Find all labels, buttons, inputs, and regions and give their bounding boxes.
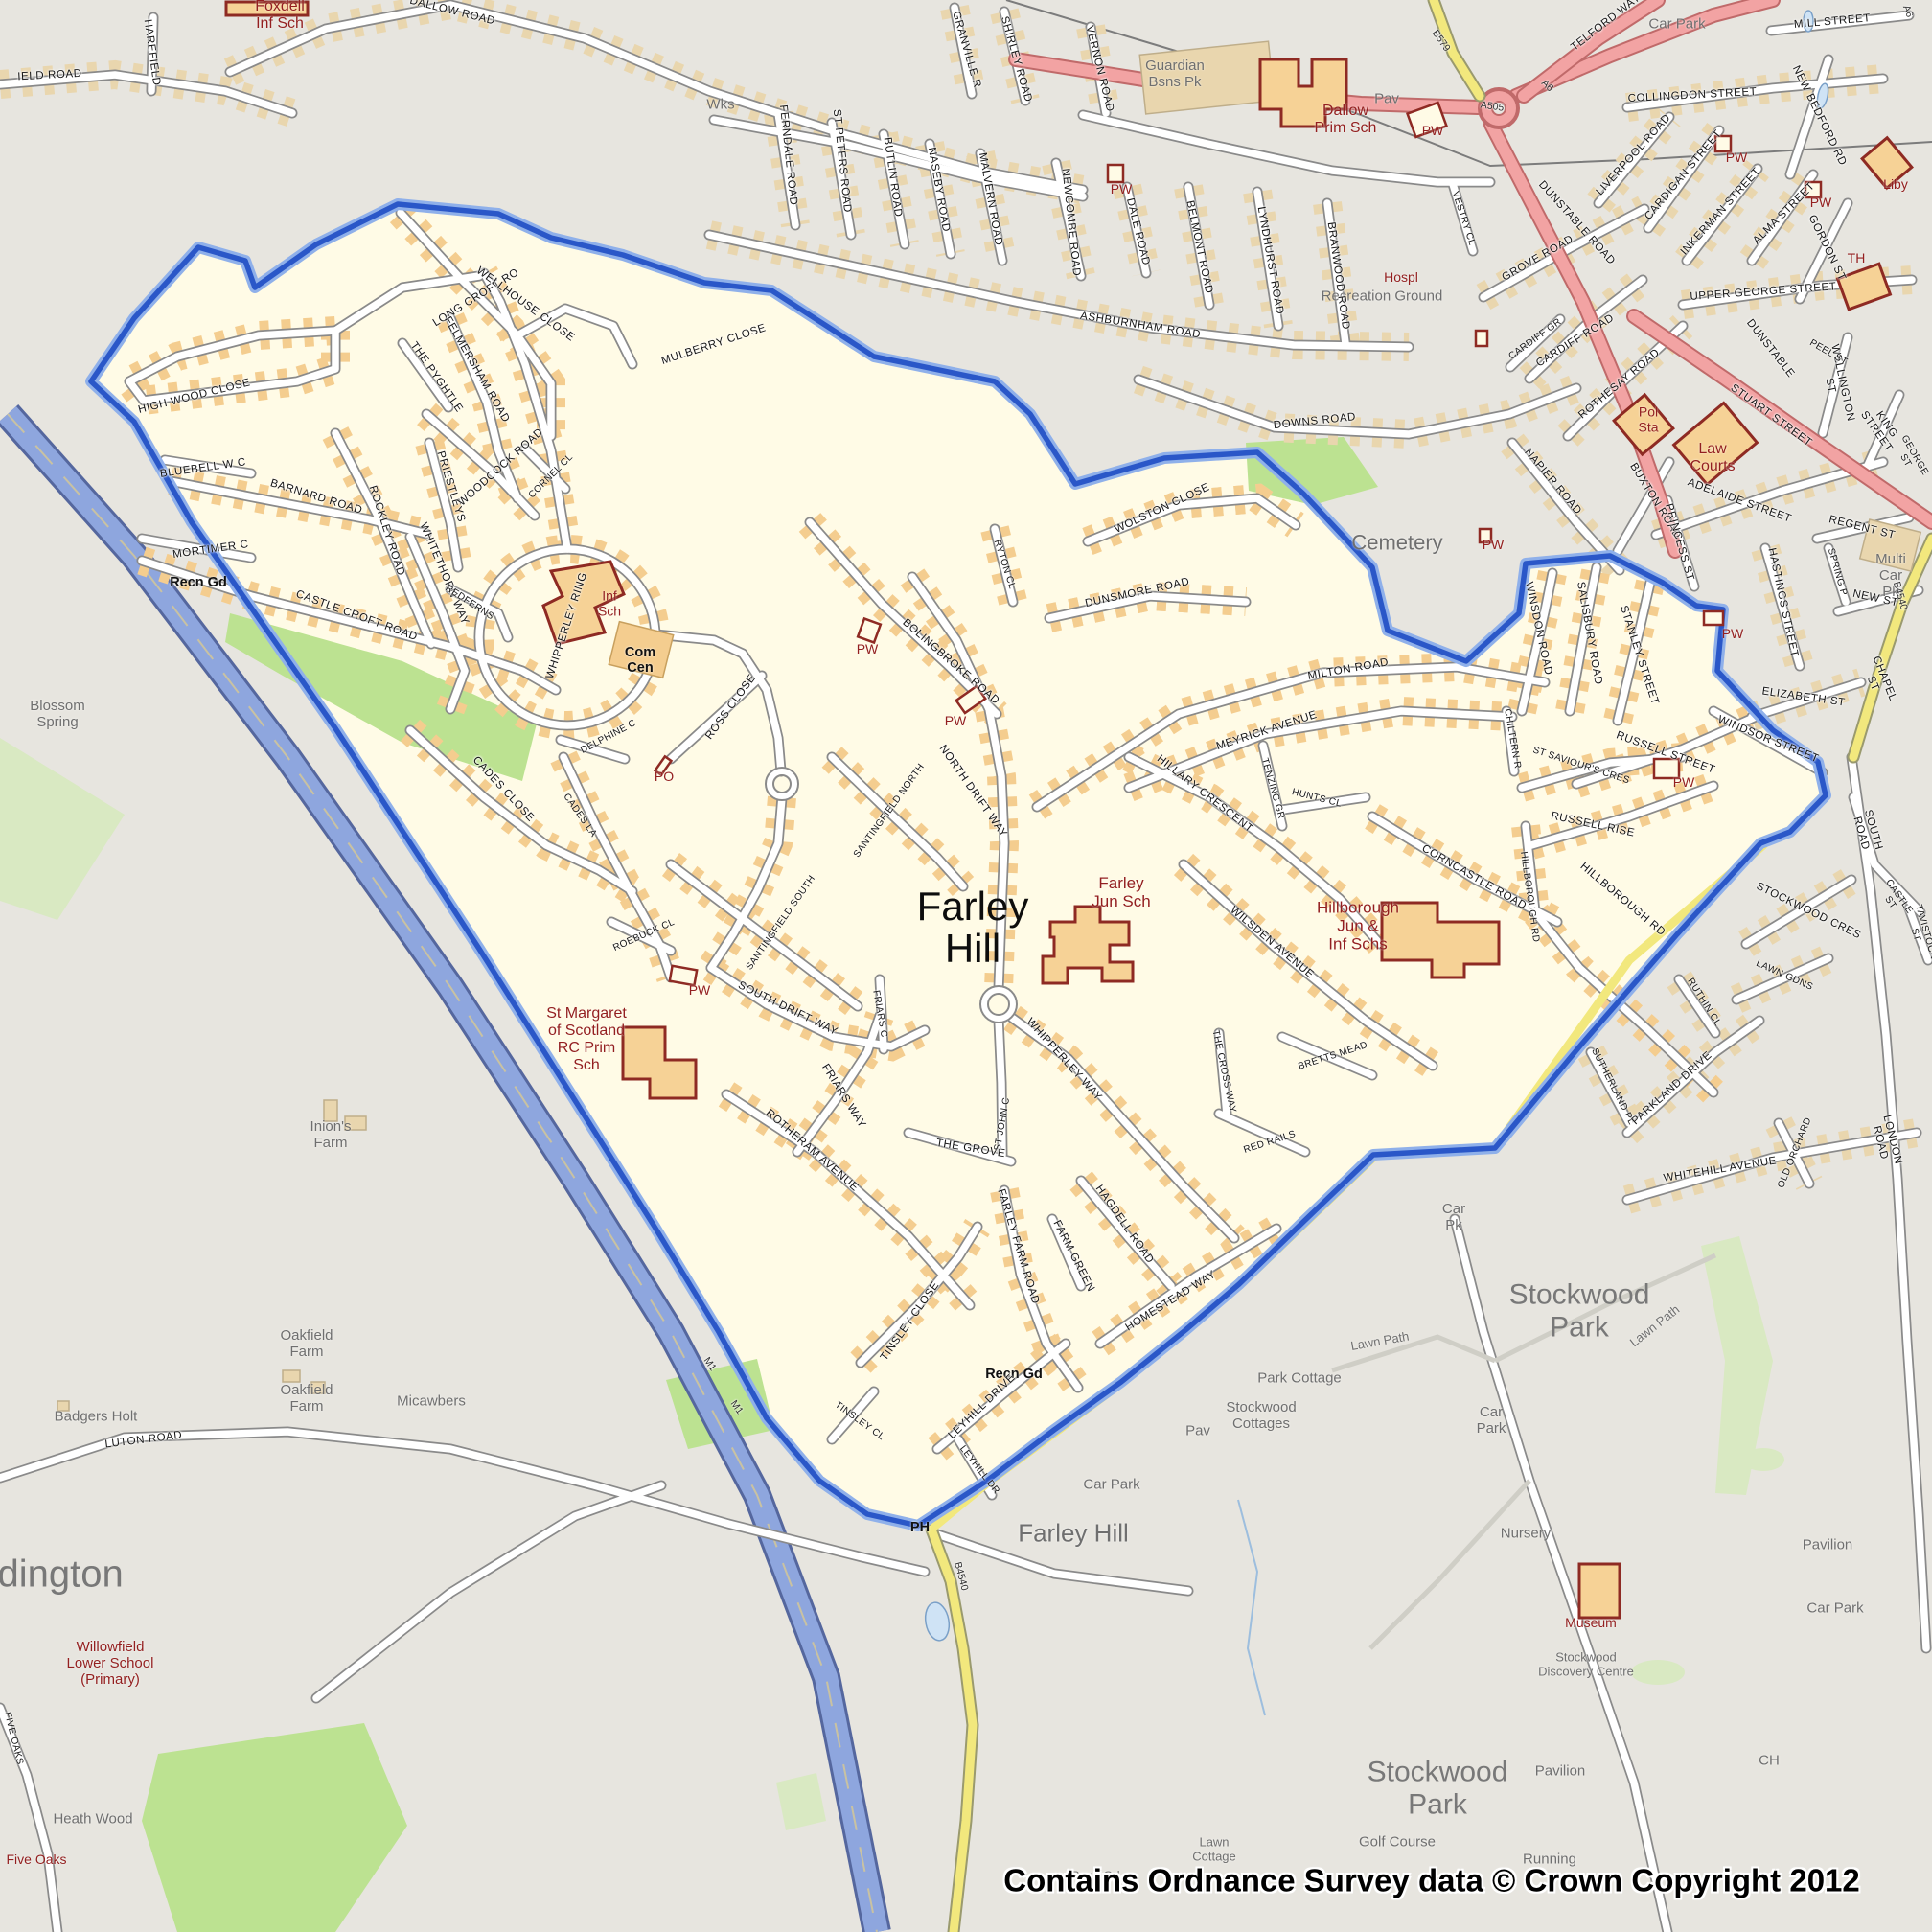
label-rotheram-avenue: ROTHERAM AVENUE	[763, 1108, 861, 1195]
label-pavilion: Pavilion	[1803, 1538, 1853, 1554]
label-nursery: Nursery	[1501, 1527, 1552, 1543]
label-st-saviour-s-cres: ST SAVIOUR'S CRES	[1531, 745, 1631, 786]
label-car-park: Car Park	[1083, 1478, 1139, 1494]
label-chiltern-r: CHILTERN R	[1502, 708, 1523, 770]
label-vernon-road: VERNON ROAD	[1083, 25, 1116, 114]
label-upper-george-street: UPPER GEORGE STREET	[1690, 281, 1837, 304]
label-the-grove: THE GROVE	[935, 1138, 1006, 1161]
label-pw: PW	[1422, 124, 1444, 139]
label-dallow-road: DALLOW ROAD	[408, 0, 496, 28]
label-car-park: Car Park	[1477, 1405, 1506, 1437]
label-hillborough-rd: HILLBOROUGH RD	[1518, 851, 1541, 943]
label-a505: A505	[1480, 100, 1505, 114]
label-wolston-close: WOLSTON CLOSE	[1113, 481, 1211, 536]
label-hillborough-rd: HILLBOROUGH RD	[1577, 861, 1667, 939]
label-pw: PW	[1673, 775, 1695, 791]
label-butlin-road: BUTLIN ROAD	[881, 137, 904, 218]
label-peel-st: PEEL ST	[1807, 337, 1849, 367]
label-cardiff-road: CARDIFF ROAD	[1534, 312, 1617, 370]
label-high-wood-close: HIGH WOOD CLOSE	[137, 377, 252, 417]
label-stockwood-park: Stockwood Park	[1368, 1756, 1508, 1820]
label-tinsley-cl: TINSLEY CL	[833, 1400, 886, 1443]
label-ryton-cl: RYTON CL	[991, 539, 1017, 590]
label-pw: PW	[945, 714, 967, 729]
label-malvern-road: MALVERN ROAD	[976, 151, 1004, 246]
label-oakfield-farm: Oakfield Farm	[280, 1383, 333, 1415]
label-b4540: B4540	[1890, 581, 1909, 611]
label-st-margaret-of-scotland-rc-prim-sch: St Margaret of Scotland RC Prim Sch	[546, 1005, 627, 1074]
label-salisbury-road: SALISBURY ROAD	[1574, 581, 1604, 686]
label-santingfield-north: SANTINGFIELD NORTH	[852, 762, 927, 860]
label-pav: Pav	[1374, 92, 1399, 108]
label-lawn-path: Lawn Path	[1627, 1302, 1682, 1349]
label-hunts-cl: HUNTS CL	[1291, 787, 1343, 810]
label-inf-sch: Inf Sch	[598, 588, 621, 618]
label-vestry-cl: VESTRY CL	[1450, 190, 1478, 246]
label-windsor-street: WINDSOR STREET	[1715, 714, 1820, 766]
label-five-oaks: Five Oaks	[6, 1852, 66, 1868]
label-whitehill-avenue: WHITEHILL AVENUE	[1663, 1155, 1778, 1184]
label-princess-st: PRINCESS ST	[1662, 502, 1695, 583]
label-micawbers: Micawbers	[397, 1394, 466, 1411]
label-rockley-road: ROCKLEY ROAD	[366, 484, 407, 578]
label-russell-rise: RUSSELL RISE	[1550, 810, 1636, 839]
label-south-drift-way: SOUTH DRIFT WAY	[736, 979, 839, 1039]
label-leyhill-dr: LEYHILL DR	[957, 1444, 1001, 1497]
label-oakfield-farm: Oakfield Farm	[280, 1328, 333, 1361]
label-luton-road: LUTON ROAD	[104, 1430, 183, 1452]
label-cades-la: CADES LA	[561, 792, 598, 839]
label-ashburnham-road: ASHBURNHAM ROAD	[1079, 310, 1202, 342]
label-five-oaks: FIVE OAKS	[2, 1711, 26, 1765]
label-parkland-drive: PARKLAND DRIVE	[1630, 1049, 1715, 1128]
label-b579: B579	[1429, 29, 1452, 55]
label-red-rails: RED RAILS	[1242, 1129, 1297, 1156]
label-alma-street: ALMA STREET	[1751, 180, 1818, 247]
label-tinsley-close: TINSLEY CLOSE	[879, 1279, 943, 1363]
label-po: PO	[655, 770, 674, 785]
label-sutherland-pl: SUTHERLAND PL	[1589, 1046, 1637, 1126]
label-wellington-st: WELLINGTON ST	[1814, 334, 1858, 433]
label-newcombe-road: NEWCOMBE ROAD	[1059, 168, 1083, 277]
label-the-pyghtle: THE PYGHTLE	[407, 340, 465, 415]
label-stockwood-cres: STOCKWOOD CRES	[1754, 881, 1863, 942]
label-granville-r: GRANVILLE R	[949, 10, 982, 89]
label-th: TH	[1848, 251, 1866, 266]
map-canvas: Foxdell Inf SchIELD ROADHAREFIELDDALLOW …	[0, 0, 1932, 1932]
label-ferndale-road: FERNDALE ROAD	[776, 104, 799, 206]
label-multi-car-pk: Multi Car Pk	[1871, 552, 1912, 600]
label-branwood-road: BRANWOOD ROAD	[1324, 221, 1352, 331]
label-homestead-way: HOMESTEAD WAY	[1123, 1269, 1218, 1335]
label-regent-st: REGENT ST	[1828, 514, 1897, 542]
label-friars-c: FRIARS C	[870, 989, 889, 1038]
label-b4540: B4540	[951, 1561, 969, 1592]
label-law-courts: Law Courts	[1690, 441, 1735, 475]
label-dallow-prim-sch: Dallow Prim Sch	[1315, 103, 1377, 137]
label-lawn-cottage: Lawn Cottage	[1192, 1835, 1236, 1863]
label-golf-course: Golf Course	[1359, 1835, 1436, 1851]
label-dunsmore-road: DUNSMORE ROAD	[1084, 576, 1191, 610]
label-pw: PW	[1722, 627, 1744, 642]
label-spring-p: SPRING P	[1826, 547, 1850, 597]
label-whitethorn-way: WHITETHORN WAY	[417, 521, 471, 627]
label-ruthin-cl: RUTHIN CL	[1685, 977, 1723, 1028]
label-wilsden-avenue: WILSDEN AVENUE	[1228, 905, 1316, 981]
label-liby: Liby	[1883, 177, 1908, 193]
label-stockwood-park: Stockwood Park	[1509, 1278, 1650, 1343]
label-pw: PW	[689, 983, 711, 999]
label-collingdon-street: COLLINGDON STREET	[1627, 86, 1757, 105]
label-blossom-spring: Blossom Spring	[30, 699, 85, 731]
label-hastings-street: HASTINGS STREET	[1765, 547, 1801, 658]
label-lyndhurst-road: LYNDHURST ROAD	[1254, 206, 1285, 316]
label-heath-wood: Heath Wood	[53, 1812, 132, 1828]
label-car-park: Car Park	[1648, 17, 1705, 34]
label-winsdon-road: WINSDON ROAD	[1522, 581, 1553, 677]
label-cardigan-street: CARDIGAN STREET	[1643, 128, 1725, 223]
label-bretts-mead: BRETTS MEAD	[1297, 1040, 1368, 1072]
label-stanley-street: STANLEY STREET	[1617, 605, 1661, 707]
label-buxton-road: BUXTON ROAD	[1626, 461, 1683, 541]
label-delphine-c: DELPHINE C	[579, 718, 638, 756]
label-running: Running	[1523, 1852, 1576, 1869]
label-grove-road: GROVE ROAD	[1500, 233, 1575, 284]
label-m1: M1	[701, 1356, 718, 1374]
label-pw: PW	[1810, 195, 1832, 211]
label-ross-close: ROSS CLOSE	[703, 673, 759, 743]
label-santingfield-south: SANTINGFIELD SOUTH	[745, 874, 818, 973]
label-st-peters-road: ST PETERS ROAD	[830, 108, 853, 213]
label-king-street: KING STREET	[1856, 401, 1905, 456]
label-cemetery: Cemetery	[1351, 532, 1442, 556]
label-recn-gd: Recn Gd	[985, 1367, 1043, 1382]
label-mortimer-c: MORTIMER C	[172, 539, 250, 562]
label-milton-road: MILTON ROAD	[1307, 656, 1390, 683]
label-a6: A6	[1899, 4, 1914, 19]
label-pw: PW	[1726, 150, 1748, 166]
label-harefield: HAREFIELD	[141, 18, 162, 86]
label-pav: Pav	[1185, 1424, 1210, 1440]
label-st-john-c: ST JOHN C	[993, 1096, 1013, 1151]
label-new-st: NEW ST	[1851, 588, 1899, 610]
label-recn-gd: Recn Gd	[170, 575, 227, 590]
label-recn-gd: Recn Gd	[1070, 1870, 1119, 1884]
label-ph: PH	[910, 1520, 930, 1535]
label-telford-way: TELFORD WAY	[1569, 0, 1644, 54]
label-cades-close: CADES CLOSE	[470, 754, 537, 824]
label-a6: A6	[1538, 78, 1554, 94]
label-felmersham-road: FELMERSHAM ROAD	[441, 315, 512, 425]
label-pol-sta: Pol Sta	[1638, 404, 1658, 434]
label-gordon-st: GORDON ST	[1805, 213, 1848, 283]
label-chapel-st: CHAPEL ST	[1857, 652, 1900, 711]
label-foxdell-inf-sch: Foxdell Inf Sch	[255, 0, 305, 33]
label-tenzing-gr: TENZING GR	[1259, 757, 1287, 820]
label-farley-jun-sch: Farley Jun Sch	[1092, 874, 1150, 910]
label-friars-way: FRIARS WAY	[818, 1062, 867, 1131]
label-priestleys: PRIESTLEYS	[434, 449, 468, 523]
label-car-park: Car Park	[1806, 1601, 1863, 1618]
label-naseby-road: NASEBY ROAD	[925, 147, 952, 233]
label-com-cen: Com Cen	[625, 645, 655, 676]
label-new-bedford-rd: NEW BEDFORD RD	[1789, 64, 1849, 169]
label-hagdell-road: HAGDELL ROAD	[1092, 1184, 1156, 1267]
label-ddington: ddington	[0, 1553, 124, 1597]
label-hillary-crescent: HILLARY CRESCENT	[1154, 753, 1254, 836]
label-north-drift-way: NORTH DRIFT WAY	[936, 743, 1009, 839]
label-pavilion: Pavilion	[1535, 1764, 1586, 1781]
label-pw: PW	[1111, 182, 1133, 197]
label-park-cottage: Park Cottage	[1257, 1371, 1342, 1388]
label-willowfield-lower-school-primary: Willowfield Lower School (Primary)	[67, 1640, 154, 1688]
label-old-orchard: OLD ORCHARD	[1776, 1116, 1814, 1190]
label-pw: PW	[857, 642, 879, 657]
label-pw: PW	[1483, 538, 1505, 553]
label-shirley-road: SHIRLEY ROAD	[998, 15, 1034, 104]
label-mill-street: MILL STREET	[1793, 12, 1871, 32]
label-mulberry-close: MULBERRY CLOSE	[660, 322, 768, 367]
label-barnard-road: BARNARD ROAD	[268, 477, 363, 517]
label-stuart-street: STUART STREET	[1728, 382, 1814, 449]
label-stockwood-cottages: Stockwood Cottages	[1226, 1400, 1296, 1433]
label-napier-road: NAPIER ROAD	[1521, 447, 1583, 517]
label-farm-green: FARM GREEN	[1050, 1219, 1097, 1295]
label-contains-ordnance-survey-data-crown-copyright-2012: Contains Ordnance Survey data © Crown Co…	[1003, 1864, 1860, 1899]
label-ield-road: IELD ROAD	[17, 68, 82, 83]
label-tavistock-st: TAVISTOCK ST	[1902, 904, 1932, 964]
label-dunstable-road: DUNSTABLE ROAD	[1535, 179, 1617, 268]
label-liverpool-road: LIVERPOOL ROAD	[1595, 112, 1674, 198]
label-dale-road: DALE ROAD	[1123, 197, 1152, 267]
label-downs-road: DOWNS ROAD	[1273, 411, 1356, 432]
label-hospl: Hospl	[1384, 270, 1418, 286]
label-corncastle-road: CORNCASTLE ROAD	[1419, 842, 1529, 912]
label-m1: M1	[727, 1399, 745, 1417]
label-farley-farm-road: FARLEY FARM ROAD	[995, 1187, 1042, 1305]
label-woodcock-road: WOODCOCK ROAD	[456, 426, 546, 509]
label-whipperley-ring: WHIPPERLEY RING	[544, 571, 590, 680]
label-wks: Wks	[706, 98, 734, 114]
label-stockwood-discovery-centre: Stockwood Discovery Centre	[1538, 1650, 1634, 1678]
label-george-st: GEORGE ST	[1890, 433, 1931, 482]
label-roebuck-cl: ROEBUCK CL	[611, 917, 677, 954]
label-bluebell-w-c: BLUEBELL W C	[159, 456, 246, 480]
label-guardian-bsns-pk: Guardian Bsns Pk	[1145, 58, 1205, 91]
label-wellhouse-close: WELLHOUSE CLOSE	[473, 265, 576, 345]
label-castle-croft-road: CASTLE CROFT ROAD	[294, 588, 419, 644]
label-redferns: REDFERNS	[444, 583, 496, 622]
label-inion-s-farm: Inion's Farm	[310, 1119, 352, 1152]
label-rothesay-road: ROTHESAY ROAD	[1576, 347, 1663, 422]
label-elizabeth-st: ELIZABETH ST	[1761, 686, 1847, 710]
label-russell-street: RUSSELL STREET	[1615, 729, 1717, 776]
label-dunstable: DUNSTABLE	[1743, 317, 1796, 380]
label-recreation-ground: Recreation Ground	[1322, 289, 1443, 306]
label-bolingbroke-road: BOLINGBROKE ROAD	[900, 617, 1001, 708]
label-belmont-road: BELMONT ROAD	[1183, 199, 1214, 295]
label-leyhill-drive: LEYHILL DRIVE	[947, 1372, 1019, 1442]
label-the-cross-way: THE CROSS WAY	[1209, 1029, 1237, 1114]
label-whipperley-way: WHIPPERLEY WAY	[1023, 1016, 1104, 1104]
label-farley-hill: Farley Hill	[1018, 1519, 1129, 1547]
label-inkerman-street: INKERMAN STREET	[1679, 166, 1764, 259]
label-hillborough-jun-inf-schs: Hillborough Jun & Inf Schs	[1317, 898, 1399, 953]
label-meyrick-avenue: MEYRICK AVENUE	[1215, 709, 1319, 753]
label-layer: Foxdell Inf SchIELD ROADHAREFIELDDALLOW …	[0, 0, 1932, 1932]
label-long-croft-ro: LONG CROFT RO	[431, 266, 522, 330]
label-museum: Museum	[1565, 1616, 1617, 1631]
label-castle-st: CASTLE ST	[1874, 878, 1915, 923]
label-south-road: SOUTH ROAD	[1846, 797, 1887, 866]
label-badgers-holt: Badgers Holt	[55, 1410, 138, 1426]
label-cornel-cl: CORNEL CL	[527, 452, 576, 501]
label-lawn-path: Lawn Path	[1349, 1330, 1410, 1354]
label-cardiff-gr: CARDIFF GR	[1506, 316, 1563, 361]
label-london-road: LONDON ROAD	[1868, 1114, 1904, 1168]
label-car-pk: Car Pk	[1442, 1202, 1465, 1234]
label-farley-hill: Farley Hill	[917, 885, 1029, 970]
label-ch: CH	[1759, 1754, 1780, 1770]
label-adelaide-street: ADELAIDE STREET	[1686, 476, 1793, 525]
label-lawn-gdns: LAWN GDNS	[1755, 958, 1815, 993]
